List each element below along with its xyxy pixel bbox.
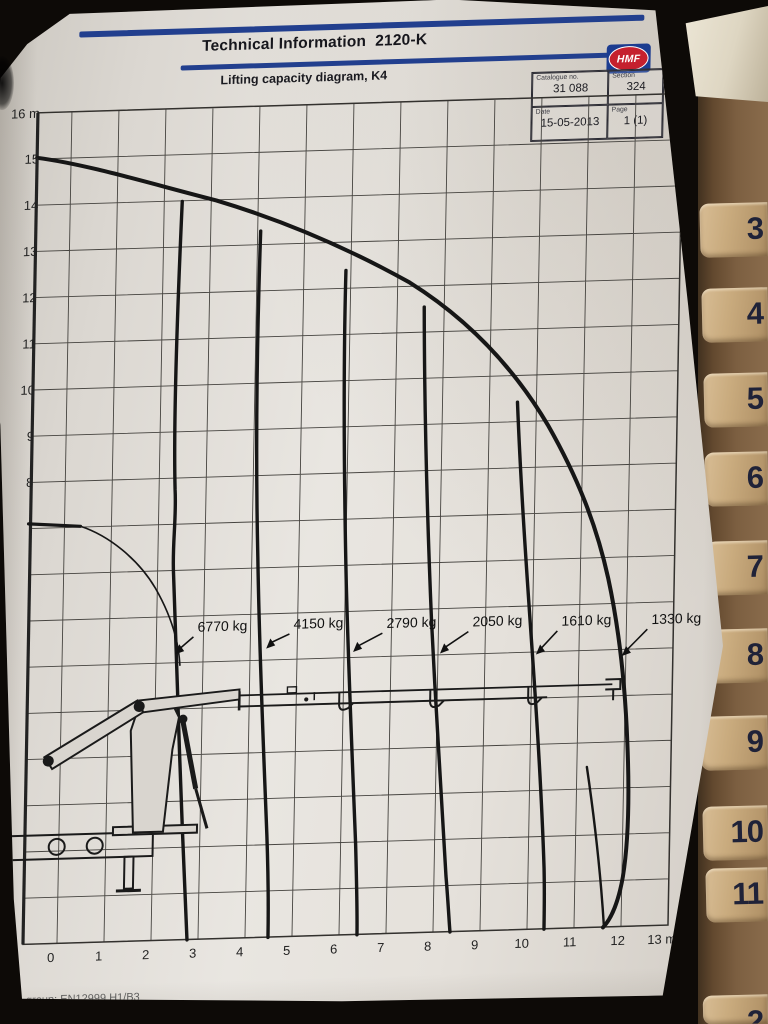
- y-tick-label: 13: [23, 244, 38, 259]
- capacity-label-1330-kg: 1330 kg: [651, 610, 701, 627]
- y-tick-label: 15: [25, 151, 40, 166]
- label-leader-line: [180, 637, 193, 648]
- x-tick-label: 8: [424, 939, 432, 954]
- y-axis-tick-labels: 16 m15141312111098: [4, 106, 40, 491]
- inner-boundary-arc: [78, 523, 183, 668]
- x-tick-label: 12: [610, 933, 625, 948]
- x-tick-label: 2: [142, 947, 150, 962]
- x-tick-label: 13 m: [647, 931, 676, 947]
- x-tick-label: 10: [514, 936, 529, 951]
- page-title: Technical Information 2120-K: [202, 31, 427, 56]
- y-tick-label: 10: [20, 382, 35, 397]
- label-leader-line: [358, 633, 382, 646]
- capacity-label-1610-kg: 1610 kg: [561, 611, 611, 628]
- label-leader-line: [271, 634, 289, 643]
- x-tick-label: 1: [95, 948, 103, 963]
- capacity-curve-2790kg: [334, 270, 369, 936]
- capacity-label-2790-kg: 2790 kg: [386, 614, 436, 631]
- y-tick-label: 11: [22, 336, 36, 351]
- y-tick-label: 16 m: [11, 106, 40, 122]
- crane-illustration: [0, 689, 239, 903]
- y-tick-label: 14: [24, 198, 39, 213]
- envelope-curve-1330kg: [23, 140, 640, 945]
- label-arrowhead: [266, 638, 275, 648]
- x-tick-label: 5: [283, 943, 291, 958]
- standard-reference: group: EN12999 H1/B3: [26, 991, 140, 1006]
- capacity-label-6770-kg: 6770 kg: [197, 617, 247, 634]
- x-tick-label: 9: [471, 937, 479, 952]
- y-tick-label: 8: [26, 475, 34, 490]
- capacity-curve-1610kg: [508, 401, 554, 930]
- x-tick-label: -1: [3, 951, 15, 966]
- hmf-logo-text: HMF: [617, 52, 641, 65]
- y-tick-label: 12: [22, 290, 37, 305]
- x-tick-label: 6: [330, 941, 338, 956]
- x-tick-label: 3: [189, 946, 197, 961]
- photographed-binder-page: 345678910112 Technical Information 2120-…: [0, 0, 768, 1024]
- capacity-label-2050-kg: 2050 kg: [472, 612, 522, 629]
- y-tick-label: 9: [27, 429, 35, 444]
- paper-sheet: Technical Information 2120-K Lifting cap…: [0, 0, 768, 1024]
- capacity-label-4150-kg: 4150 kg: [293, 614, 343, 631]
- label-arrowhead: [353, 642, 362, 652]
- header-rule-bottom: [181, 53, 609, 71]
- binder-tab-number: 2: [747, 1004, 764, 1024]
- label-leader-line: [445, 632, 468, 648]
- document-page: Technical Information 2120-K Lifting cap…: [0, 0, 768, 1024]
- label-leader-line: [541, 631, 557, 648]
- label-leader-line: [627, 629, 647, 650]
- x-tick-label: 4: [236, 944, 244, 959]
- x-tick-label: 7: [377, 940, 385, 955]
- lifting-capacity-chart: -1012345678910111213 m 16 m1514131211109…: [0, 72, 766, 1000]
- x-tick-label: 0: [47, 950, 55, 965]
- envelope-inner-line: [584, 766, 607, 928]
- x-tick-label: 11: [563, 934, 577, 949]
- inner-boundary-thick: [28, 522, 80, 528]
